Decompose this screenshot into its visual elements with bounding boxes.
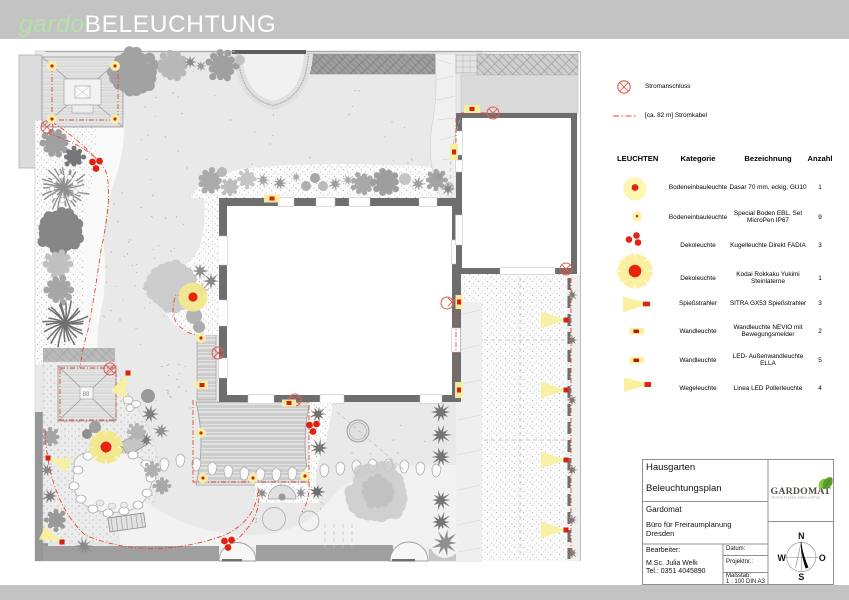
svg-text:W: W xyxy=(777,553,786,563)
svg-text:O: O xyxy=(819,553,826,563)
svg-text:PROFIS PLANEN IHREN GARTEN.: PROFIS PLANEN IHREN GARTEN. xyxy=(772,496,822,500)
svg-text:S: S xyxy=(798,572,804,582)
svg-text:N: N xyxy=(798,531,804,541)
svg-text:88: 88 xyxy=(83,392,90,398)
